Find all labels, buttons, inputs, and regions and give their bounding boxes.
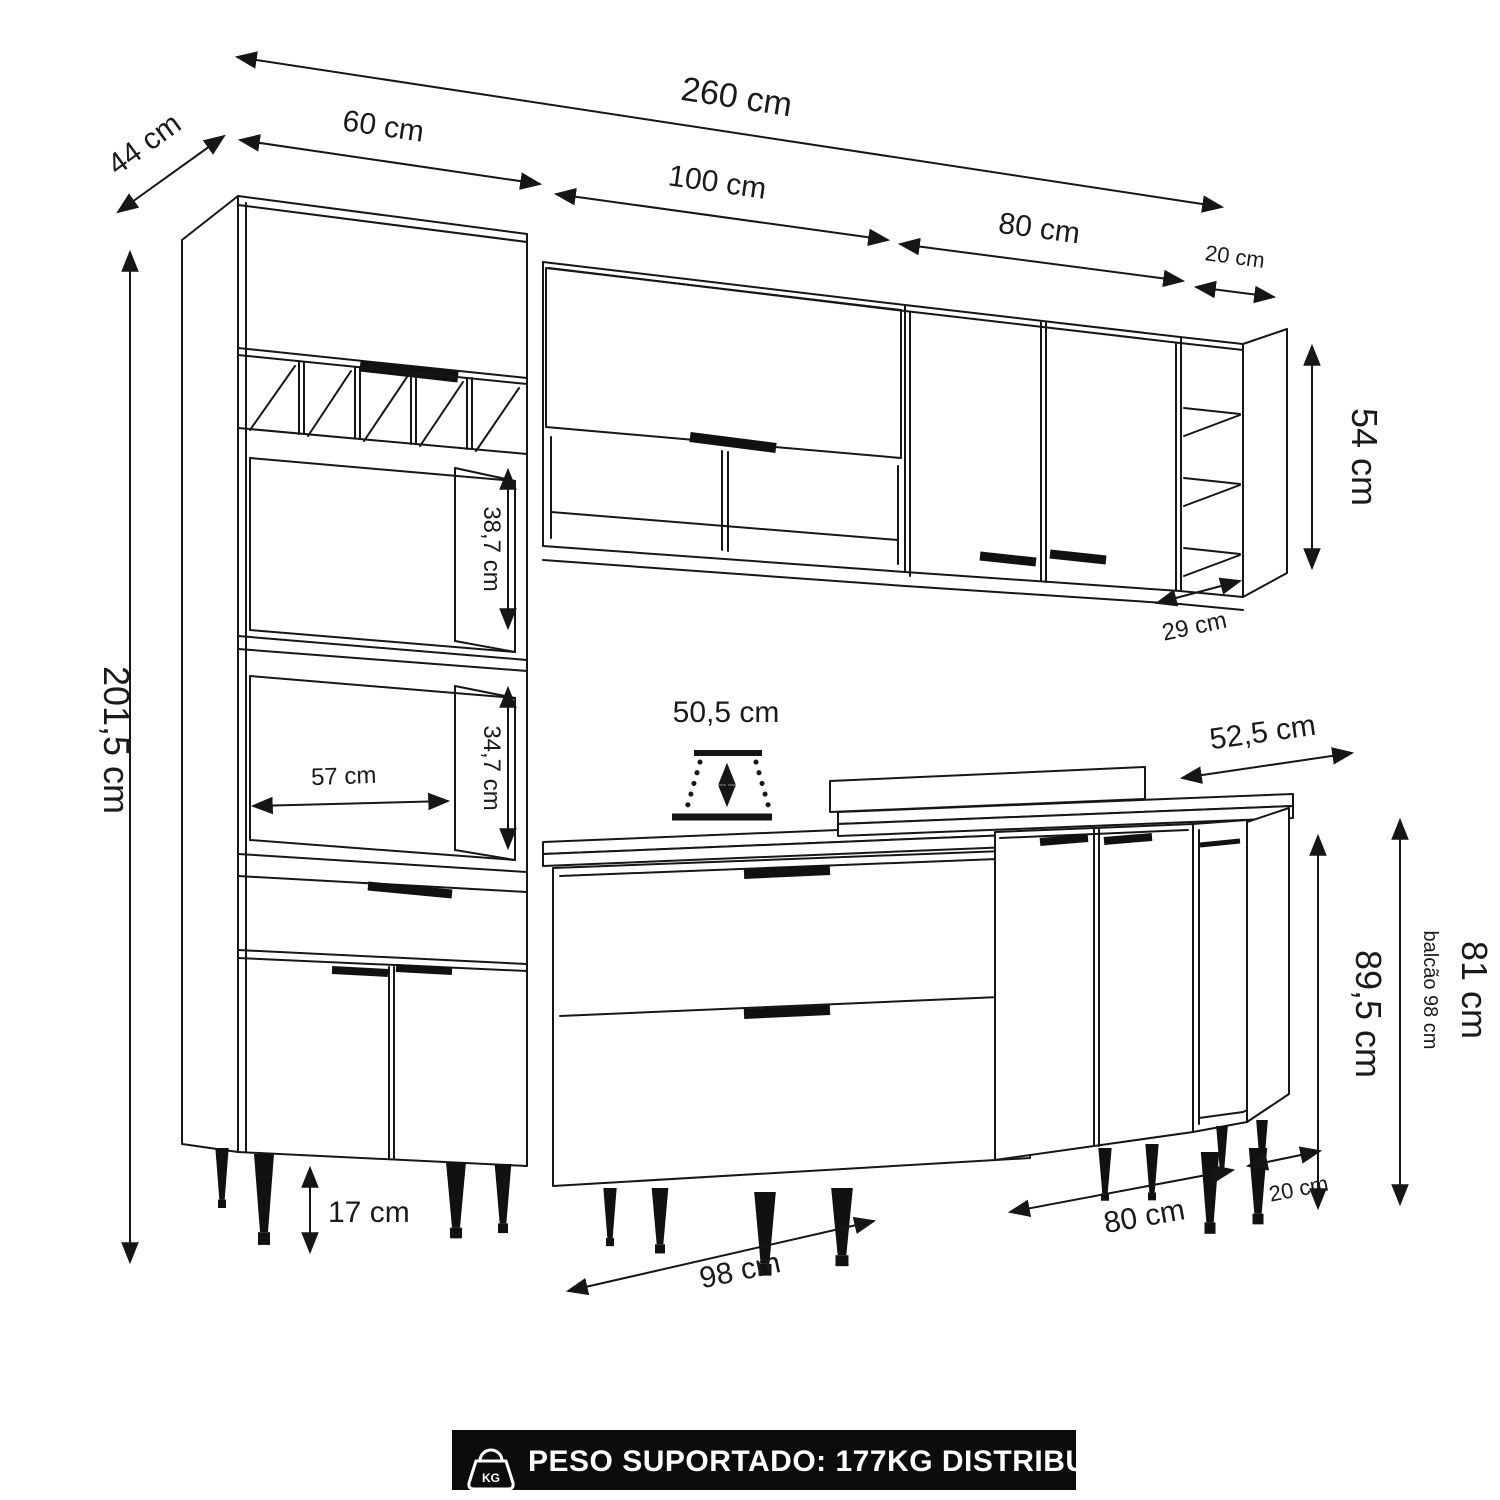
dim-counter-cabinet-height-label: 81 cm (1454, 941, 1495, 1039)
wall-row-bottom-edge (543, 546, 1243, 597)
base-cabinets (543, 767, 1293, 1186)
drawer-bottom-handle (744, 1010, 830, 1014)
svg-text:KG: KG (482, 1471, 500, 1485)
dim-tall-width-label: 60 cm (341, 104, 427, 148)
drawer-top-handle (744, 870, 830, 874)
dim-counter-depth-arrow (1182, 753, 1352, 778)
base-door-left-handle (1040, 838, 1088, 842)
dim-wall-right-arrow (900, 244, 1183, 281)
wall-end-side-panel (1243, 329, 1287, 597)
kitchen-cabinet-dimension-diagram: 260 cm 60 cm 100 cm 80 cm 20 cm 44 cm 20… (0, 0, 1500, 1500)
wall-door-left-handle (980, 556, 1036, 562)
dim-counter-height-label: 89,5 cm (1348, 950, 1389, 1078)
dim-counter-total-note-label: balcão 98 cm (1419, 931, 1441, 1050)
base-cabinet-80 (995, 824, 1193, 1160)
dim-wall-center-arrow (556, 194, 888, 240)
wall-flip-door (546, 268, 901, 458)
dim-wall-height-label: 54 cm (1344, 408, 1385, 506)
end-shelf-rail (1200, 841, 1240, 845)
dim-base-left-label: 98 cm (697, 1246, 784, 1295)
dim-counter-depth-label: 52,5 cm (1208, 709, 1318, 757)
tall-cabinet (182, 196, 527, 1166)
dim-leg-height-label: 17 cm (328, 1196, 410, 1229)
diagram-canvas: 260 cm 60 cm 100 cm 80 cm 20 cm 44 cm 20… (0, 0, 1500, 1500)
dim-wall-depth-label: 29 cm (1160, 607, 1230, 647)
dim-tall-width-arrow (240, 140, 540, 184)
wall-cabinets (543, 262, 1287, 610)
dim-base-end-label: 20 cm (1267, 1171, 1331, 1207)
base-end-shelf-20 (1193, 808, 1289, 1132)
dim-wall-end-arrow (1196, 287, 1274, 297)
base-end-side-panel (1247, 808, 1289, 1122)
tall-door-left-handle (332, 970, 388, 973)
dim-wall-end-label: 20 cm (1204, 240, 1267, 273)
dim-niche-lower-label: 34,7 cm (478, 725, 505, 810)
wall-cabinet-100 (546, 268, 901, 564)
base-door-right-handle (1104, 837, 1152, 841)
tall-cabinet-front (238, 196, 527, 1166)
dim-base-right-label: 80 cm (1101, 1193, 1187, 1240)
tall-door-right-handle (396, 968, 452, 971)
dim-wall-center-label: 100 cm (666, 159, 768, 205)
dim-clearance-label: 50,5 cm (673, 696, 780, 729)
wall-door-right-handle (1050, 554, 1106, 560)
banner-label: PESO SUPORTADO: 177KG DISTRIBUÍDOS (528, 1444, 1163, 1478)
tall-cabinet-side-panel (182, 196, 238, 1152)
weight-banner: KG PESO SUPORTADO: 177KG DISTRIBUÍDOS (452, 1430, 1163, 1490)
wall-flip-door-handle (690, 437, 776, 448)
dim-wall-right-label: 80 cm (997, 207, 1082, 251)
dim-niche-width-label: 57 cm (311, 762, 377, 791)
dim-total-width-label: 260 cm (679, 70, 795, 124)
wall-end-shelf-20 (1181, 329, 1287, 597)
dim-wall-depth-arrow (1157, 581, 1240, 603)
dim-total-height-label: 201,5 cm (96, 666, 137, 814)
wall-cabinet-80 (905, 305, 1176, 590)
dim-niche-upper-label: 38,7 cm (478, 506, 505, 591)
clearance-icon (672, 753, 772, 817)
base-cabinet-98 (553, 850, 1030, 1186)
